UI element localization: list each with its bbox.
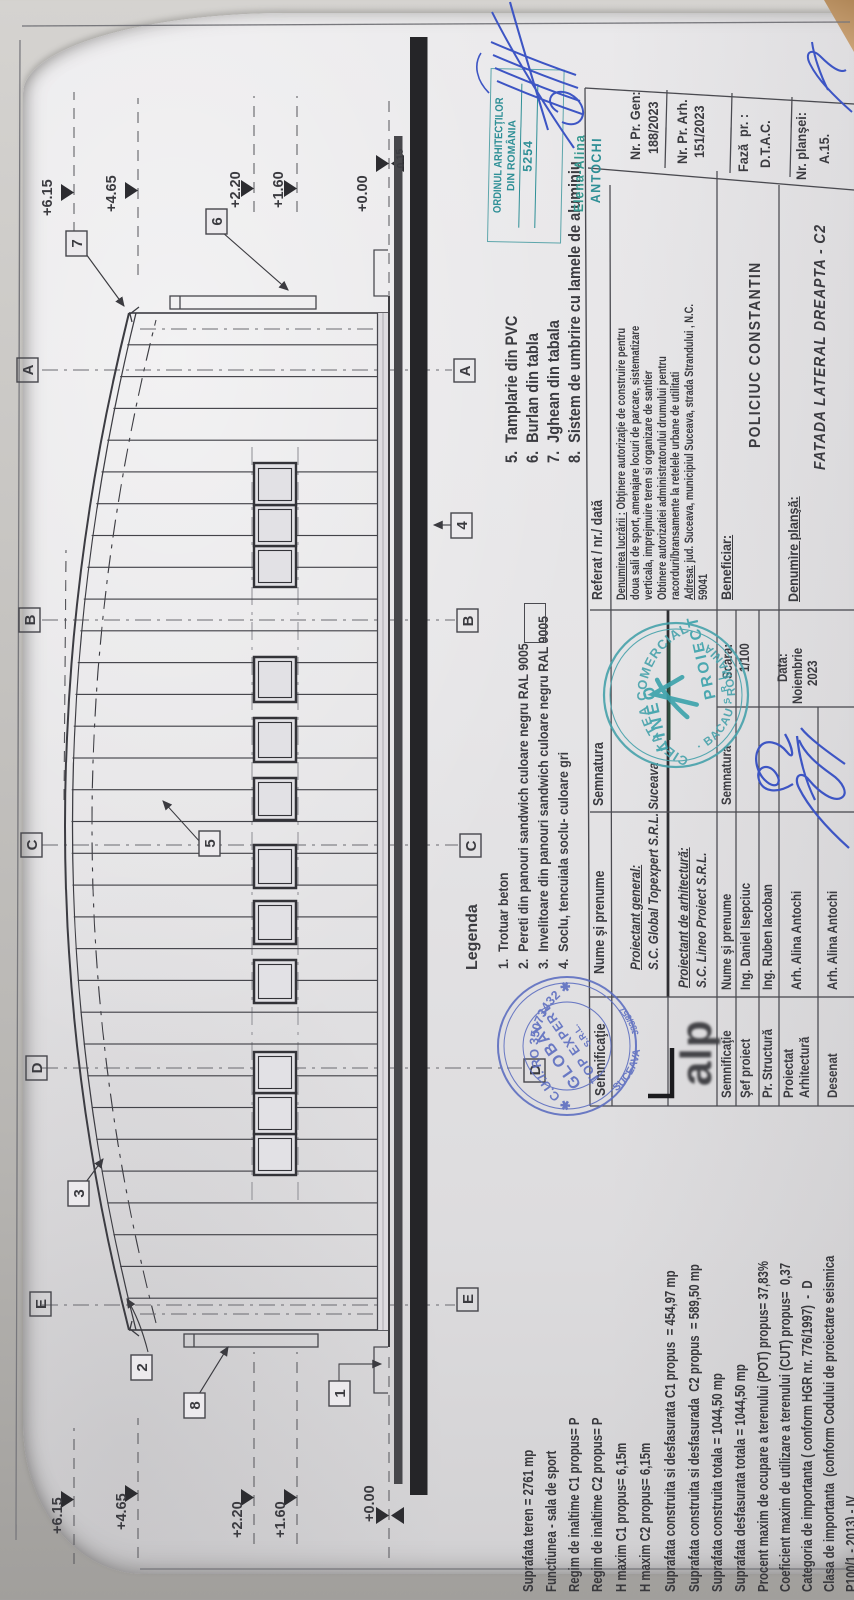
svg-text:SUCEAVA: SUCEAVA <box>611 1048 643 1094</box>
